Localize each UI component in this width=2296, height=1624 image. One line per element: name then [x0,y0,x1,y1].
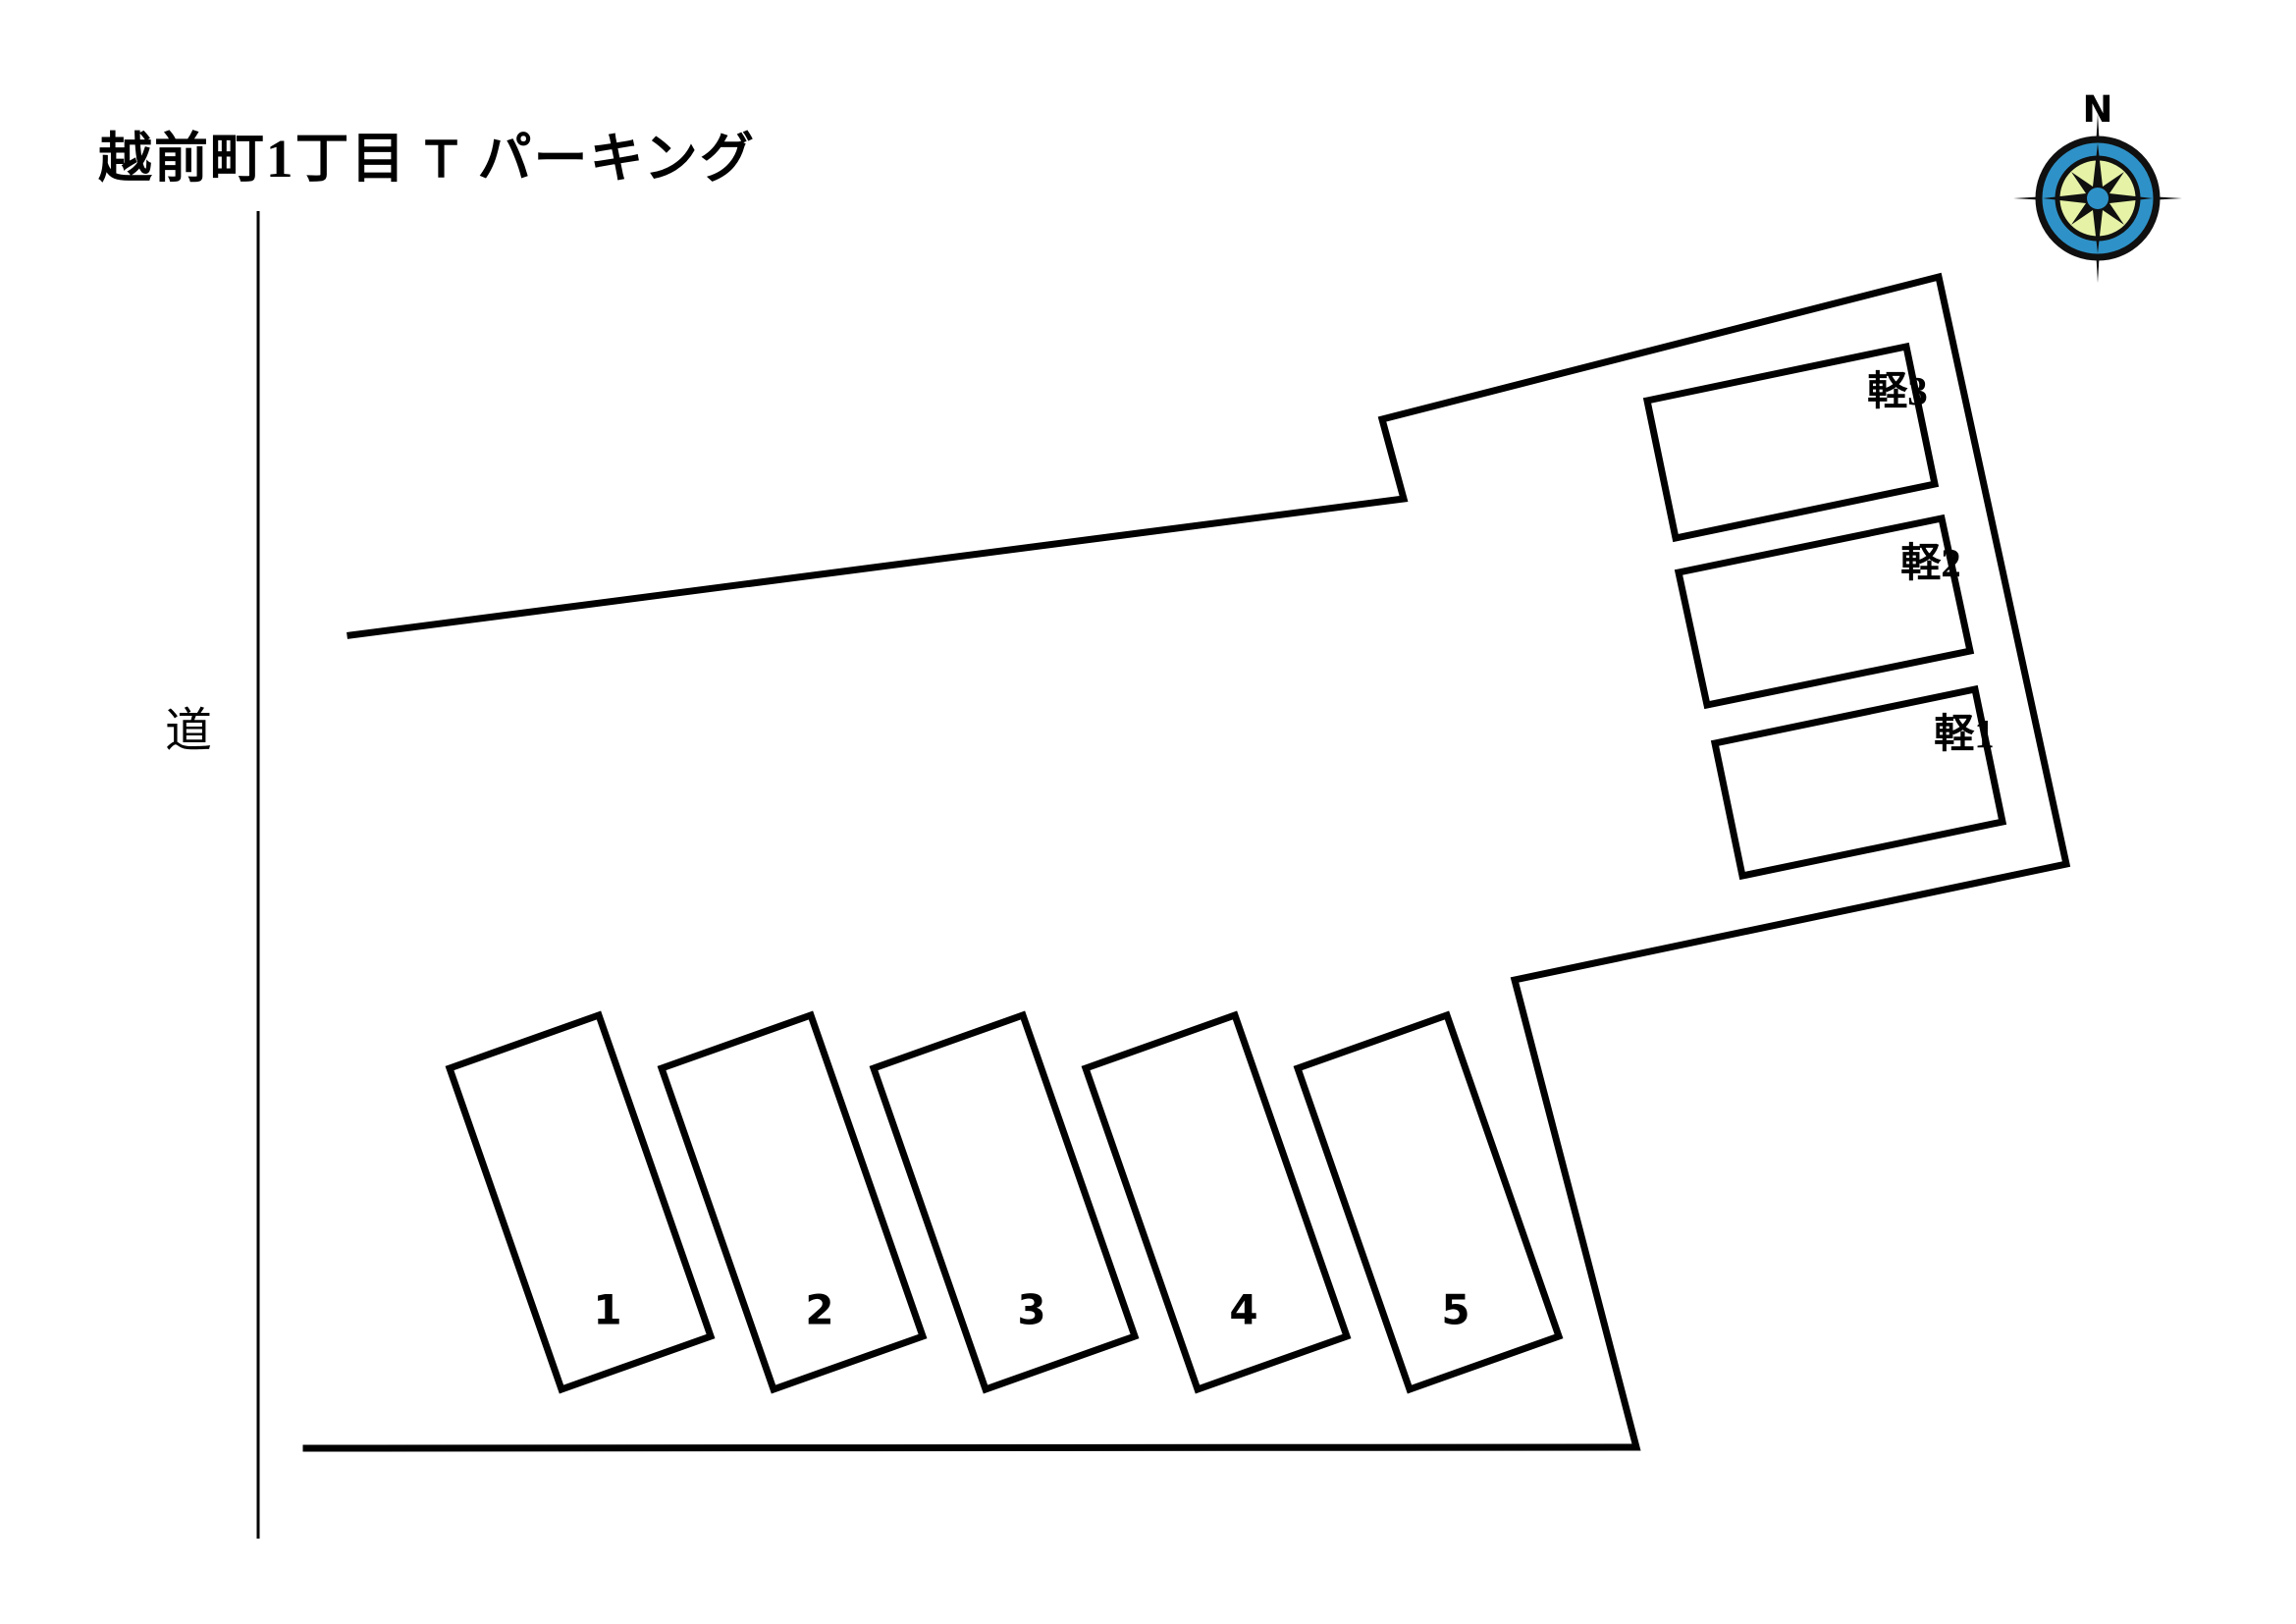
parking-space-3-label: 3 [1017,1286,1045,1334]
parking-map-canvas: 軽3 軽2 軽1 1 2 3 4 5 N [0,0,2296,1624]
page-title-prefix: 越前町1丁目 [98,129,407,189]
parking-map: 軽3 軽2 軽1 1 2 3 4 5 N 越前町1丁目Ｔパーキング 道 [0,0,2296,1624]
compass-center-dot [2087,188,2109,209]
parking-space-5-label: 5 [1441,1286,1469,1334]
kei-space-2-label: 軽2 [1900,540,1961,585]
compass-icon: N [2013,88,2182,283]
page-title-suffix: パーキング [478,129,756,189]
road-label: 道 [165,691,212,760]
page-title: 越前町1丁目Ｔパーキング [98,114,756,192]
kei-space-1-label: 軽1 [1934,711,1995,756]
parking-space-4-label: 4 [1229,1286,1257,1334]
page-title-t-mark: Ｔ [417,132,468,189]
compass-north-label: N [2083,88,2113,131]
parking-space-1-label: 1 [593,1286,621,1334]
kei-space-3-label: 軽3 [1867,368,1928,413]
parking-space-2-label: 2 [805,1286,833,1334]
